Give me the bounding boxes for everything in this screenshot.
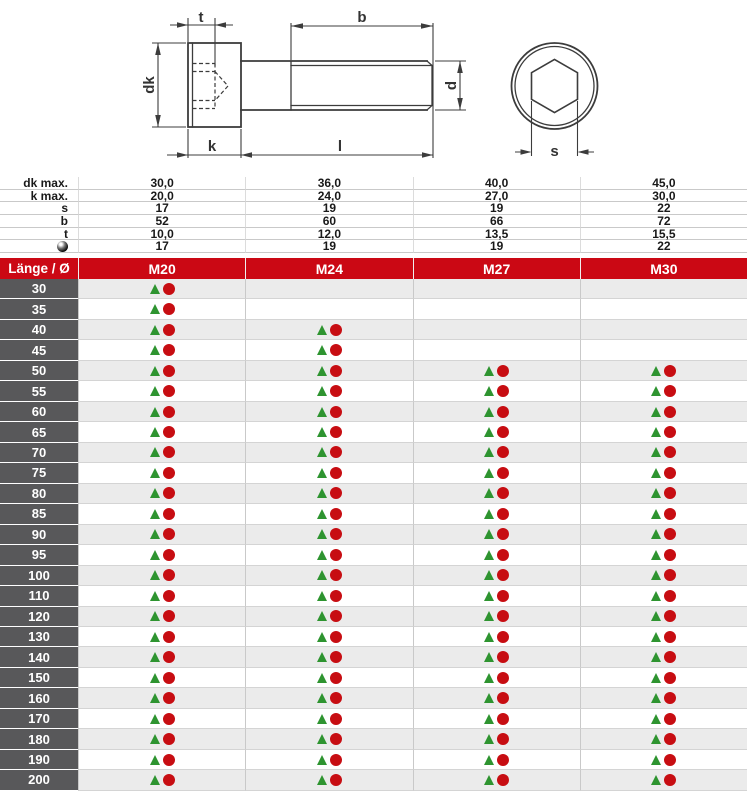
availability-M20-90: [78, 525, 245, 545]
circle-marker: [330, 385, 342, 397]
triangle-marker: [150, 693, 160, 703]
circle-marker: [330, 344, 342, 356]
availability-M27-150: [413, 668, 580, 688]
circle-marker: [497, 487, 509, 499]
availability-M30-70: [580, 443, 747, 463]
circle-marker: [163, 324, 175, 336]
spec-value-dk-max-M24: 36,0: [245, 177, 412, 190]
triangle-marker: [484, 407, 494, 417]
triangle-marker: [484, 468, 494, 478]
availability-M20-40: [78, 320, 245, 340]
triangle-marker: [150, 427, 160, 437]
circle-marker: [330, 713, 342, 725]
availability-M20-180: [78, 729, 245, 749]
availability-M24-50: [245, 361, 412, 381]
circle-marker: [330, 549, 342, 561]
availability-M24-75: [245, 463, 412, 483]
header-col-M24: M24: [245, 258, 412, 279]
triangle-marker: [651, 427, 661, 437]
length-row-55: 55: [0, 381, 747, 401]
triangle-marker: [150, 386, 160, 396]
availability-M24-85: [245, 504, 412, 524]
availability-M30-45: [580, 340, 747, 360]
circle-marker: [497, 549, 509, 561]
triangle-marker: [651, 488, 661, 498]
triangle-marker: [317, 366, 327, 376]
availability-M20-30: [78, 279, 245, 299]
availability-M30-95: [580, 545, 747, 565]
triangle-marker: [150, 304, 160, 314]
availability-M24-190: [245, 750, 412, 770]
circle-marker: [497, 733, 509, 745]
circle-marker: [664, 733, 676, 745]
length-label: 120: [0, 607, 78, 627]
screw-datasheet-page: t b dk k l d s dk max.30,036,040,045,0k …: [0, 0, 747, 791]
triangle-marker: [484, 755, 494, 765]
availability-M30-130: [580, 627, 747, 647]
triangle-marker: [651, 386, 661, 396]
circle-marker: [664, 631, 676, 643]
length-row-65: 65: [0, 422, 747, 442]
header-col-M30: M30: [580, 258, 747, 279]
availability-M30-75: [580, 463, 747, 483]
availability-M20-75: [78, 463, 245, 483]
length-label: 85: [0, 504, 78, 524]
availability-M27-200: [413, 770, 580, 790]
circle-marker: [330, 528, 342, 540]
availability-M24-80: [245, 484, 412, 504]
triangle-marker: [651, 652, 661, 662]
availability-M20-55: [78, 381, 245, 401]
circle-marker: [163, 385, 175, 397]
triangle-marker: [651, 468, 661, 478]
triangle-marker: [317, 488, 327, 498]
length-row-50: 50: [0, 361, 747, 381]
availability-M24-40: [245, 320, 412, 340]
circle-marker: [163, 406, 175, 418]
availability-M30-55: [580, 381, 747, 401]
circle-marker: [497, 365, 509, 377]
length-label: 100: [0, 566, 78, 586]
triangle-marker: [651, 509, 661, 519]
circle-marker: [497, 713, 509, 725]
spec-row-label-t: t: [0, 228, 78, 241]
availability-M30-190: [580, 750, 747, 770]
circle-marker: [497, 631, 509, 643]
triangle-marker: [150, 673, 160, 683]
circle-marker: [163, 672, 175, 684]
availability-M24-65: [245, 422, 412, 442]
length-row-140: 140: [0, 647, 747, 667]
triangle-marker: [150, 611, 160, 621]
availability-M24-180: [245, 729, 412, 749]
circle-marker: [163, 303, 175, 315]
circle-marker: [330, 426, 342, 438]
circle-marker: [497, 651, 509, 663]
availability-M27-190: [413, 750, 580, 770]
circle-marker: [664, 446, 676, 458]
header-col-M20: M20: [78, 258, 245, 279]
length-row-30: 30: [0, 279, 747, 299]
availability-M20-130: [78, 627, 245, 647]
dim-label-s: s: [550, 143, 558, 160]
length-row-130: 130: [0, 627, 747, 647]
length-label: 80: [0, 484, 78, 504]
spec-row-label-key-size: [0, 240, 78, 253]
length-row-190: 190: [0, 750, 747, 770]
circle-marker: [497, 528, 509, 540]
spec-row-k-max: k max.20,024,027,030,0: [0, 190, 747, 203]
length-row-75: 75: [0, 463, 747, 483]
availability-M27-65: [413, 422, 580, 442]
availability-M27-140: [413, 647, 580, 667]
availability-M20-110: [78, 586, 245, 606]
spec-value-key-size-M30: 22: [580, 240, 747, 253]
availability-M24-160: [245, 688, 412, 708]
length-row-90: 90: [0, 525, 747, 545]
length-label: 35: [0, 299, 78, 319]
triangle-marker: [317, 345, 327, 355]
triangle-marker: [150, 345, 160, 355]
length-row-110: 110: [0, 586, 747, 606]
availability-M27-35: [413, 299, 580, 319]
triangle-marker: [150, 591, 160, 601]
circle-marker: [497, 692, 509, 704]
availability-M30-85: [580, 504, 747, 524]
availability-M24-60: [245, 402, 412, 422]
availability-M24-30: [245, 279, 412, 299]
circle-marker: [163, 365, 175, 377]
length-label: 75: [0, 463, 78, 483]
dim-label-t: t: [199, 9, 204, 26]
triangle-marker: [484, 447, 494, 457]
spec-row-b: b52606672: [0, 215, 747, 228]
availability-M30-30: [580, 279, 747, 299]
availability-M30-180: [580, 729, 747, 749]
circle-marker: [664, 754, 676, 766]
circle-marker: [163, 283, 175, 295]
availability-M20-120: [78, 607, 245, 627]
triangle-marker: [484, 591, 494, 601]
triangle-marker: [150, 407, 160, 417]
spec-row-key-size: 17191922: [0, 240, 747, 253]
spec-value-dk-max-M20: 30,0: [78, 177, 245, 190]
triangle-marker: [651, 734, 661, 744]
hidden-socket-lines: [193, 64, 229, 109]
dim-label-d: d: [443, 81, 460, 90]
availability-M20-190: [78, 750, 245, 770]
availability-M30-170: [580, 709, 747, 729]
length-row-160: 160: [0, 688, 747, 708]
length-row-170: 170: [0, 709, 747, 729]
screw-end-view: [512, 43, 598, 129]
availability-M27-55: [413, 381, 580, 401]
triangle-marker: [484, 386, 494, 396]
availability-M27-180: [413, 729, 580, 749]
length-row-100: 100: [0, 566, 747, 586]
spec-row-s: s17191922: [0, 202, 747, 215]
availability-M30-50: [580, 361, 747, 381]
spec-value-dk-max-M27: 40,0: [413, 177, 580, 190]
availability-M24-90: [245, 525, 412, 545]
circle-marker: [497, 467, 509, 479]
triangle-marker: [317, 550, 327, 560]
availability-M20-140: [78, 647, 245, 667]
circle-marker: [664, 467, 676, 479]
triangle-marker: [484, 632, 494, 642]
triangle-marker: [150, 468, 160, 478]
availability-M20-50: [78, 361, 245, 381]
length-label: 90: [0, 525, 78, 545]
availability-M20-100: [78, 566, 245, 586]
availability-M24-55: [245, 381, 412, 401]
availability-M24-70: [245, 443, 412, 463]
availability-M20-170: [78, 709, 245, 729]
circle-marker: [163, 508, 175, 520]
availability-M20-80: [78, 484, 245, 504]
availability-M27-90: [413, 525, 580, 545]
spec-row-label-dk-max: dk max.: [0, 177, 78, 190]
availability-M27-30: [413, 279, 580, 299]
length-label: 45: [0, 340, 78, 360]
triangle-marker: [150, 284, 160, 294]
length-label: 55: [0, 381, 78, 401]
triangle-marker: [150, 632, 160, 642]
availability-M27-130: [413, 627, 580, 647]
triangle-marker: [651, 570, 661, 580]
circle-marker: [330, 754, 342, 766]
triangle-marker: [651, 673, 661, 683]
triangle-marker: [651, 775, 661, 785]
circle-marker: [163, 774, 175, 786]
length-row-45: 45: [0, 340, 747, 360]
availability-M30-60: [580, 402, 747, 422]
triangle-marker: [317, 468, 327, 478]
circle-marker: [163, 344, 175, 356]
triangle-marker: [150, 714, 160, 724]
circle-marker: [664, 487, 676, 499]
triangle-marker: [317, 570, 327, 580]
length-row-200: 200: [0, 770, 747, 790]
availability-M20-70: [78, 443, 245, 463]
circle-marker: [497, 590, 509, 602]
length-label: 65: [0, 422, 78, 442]
triangle-marker: [484, 652, 494, 662]
triangle-marker: [317, 652, 327, 662]
availability-M30-90: [580, 525, 747, 545]
length-label: 110: [0, 586, 78, 606]
triangle-marker: [150, 775, 160, 785]
length-row-80: 80: [0, 484, 747, 504]
availability-M27-100: [413, 566, 580, 586]
triangle-marker: [651, 693, 661, 703]
spec-value-dk-max-M30: 45,0: [580, 177, 747, 190]
circle-marker: [664, 508, 676, 520]
circle-marker: [664, 569, 676, 581]
length-row-40: 40: [0, 320, 747, 340]
triangle-marker: [484, 734, 494, 744]
triangle-marker: [484, 775, 494, 785]
spec-value-key-size-M27: 19: [413, 240, 580, 253]
circle-marker: [330, 569, 342, 581]
triangle-marker: [651, 550, 661, 560]
screw-side-view: [188, 43, 432, 127]
triangle-marker: [484, 366, 494, 376]
availability-M27-40: [413, 320, 580, 340]
circle-marker: [163, 692, 175, 704]
circle-marker: [163, 569, 175, 581]
availability-M24-120: [245, 607, 412, 627]
spec-row-label-b: b: [0, 215, 78, 228]
spec-value-b-M24: 60: [245, 215, 412, 228]
circle-marker: [664, 426, 676, 438]
triangle-marker: [317, 529, 327, 539]
length-label: 70: [0, 443, 78, 463]
availability-M27-60: [413, 402, 580, 422]
spec-table: dk max.30,036,040,045,0k max.20,024,027,…: [0, 177, 747, 253]
availability-M24-170: [245, 709, 412, 729]
circle-marker: [497, 406, 509, 418]
triangle-marker: [150, 755, 160, 765]
circle-marker: [163, 446, 175, 458]
triangle-marker: [317, 386, 327, 396]
triangle-marker: [484, 488, 494, 498]
availability-M20-150: [78, 668, 245, 688]
availability-M24-200: [245, 770, 412, 790]
circle-marker: [497, 385, 509, 397]
dimension-lines: [152, 18, 594, 158]
circle-marker: [163, 610, 175, 622]
circle-marker: [330, 406, 342, 418]
availability-M27-170: [413, 709, 580, 729]
length-label: 180: [0, 729, 78, 749]
availability-M30-65: [580, 422, 747, 442]
triangle-marker: [484, 550, 494, 560]
circle-marker: [163, 528, 175, 540]
availability-M30-120: [580, 607, 747, 627]
spec-value-b-M27: 66: [413, 215, 580, 228]
circle-marker: [664, 385, 676, 397]
length-label: 170: [0, 709, 78, 729]
spec-value-b-M20: 52: [78, 215, 245, 228]
availability-M20-200: [78, 770, 245, 790]
circle-marker: [330, 590, 342, 602]
triangle-marker: [150, 366, 160, 376]
triangle-marker: [317, 325, 327, 335]
length-header-cell: Länge / Ø: [0, 258, 78, 279]
triangle-marker: [484, 570, 494, 580]
triangle-marker: [150, 325, 160, 335]
availability-M20-95: [78, 545, 245, 565]
length-label: 160: [0, 688, 78, 708]
length-row-180: 180: [0, 729, 747, 749]
triangle-marker: [317, 611, 327, 621]
triangle-marker: [651, 529, 661, 539]
triangle-marker: [317, 693, 327, 703]
triangle-marker: [317, 775, 327, 785]
availability-M27-95: [413, 545, 580, 565]
dim-label-l: l: [338, 138, 342, 155]
triangle-marker: [150, 570, 160, 580]
length-row-95: 95: [0, 545, 747, 565]
circle-marker: [664, 590, 676, 602]
availability-M20-85: [78, 504, 245, 524]
circle-marker: [664, 672, 676, 684]
triangle-marker: [150, 509, 160, 519]
availability-M24-150: [245, 668, 412, 688]
triangle-marker: [484, 509, 494, 519]
table-header: Länge / Ø M20M24M27M30: [0, 258, 747, 279]
triangle-marker: [484, 714, 494, 724]
dim-label-b: b: [357, 9, 366, 26]
spec-value-key-size-M20: 17: [78, 240, 245, 253]
length-row-85: 85: [0, 504, 747, 524]
length-row-150: 150: [0, 668, 747, 688]
availability-M27-70: [413, 443, 580, 463]
circle-marker: [330, 365, 342, 377]
length-label: 130: [0, 627, 78, 647]
availability-M27-80: [413, 484, 580, 504]
triangle-marker: [317, 632, 327, 642]
triangle-marker: [651, 611, 661, 621]
dim-label-dk: dk: [141, 76, 158, 94]
triangle-marker: [651, 366, 661, 376]
circle-marker: [664, 365, 676, 377]
triangle-marker: [317, 427, 327, 437]
triangle-marker: [651, 591, 661, 601]
triangle-marker: [150, 652, 160, 662]
triangle-marker: [317, 509, 327, 519]
availability-M30-40: [580, 320, 747, 340]
spec-value-key-size-M24: 19: [245, 240, 412, 253]
triangle-marker: [317, 407, 327, 417]
circle-marker: [497, 426, 509, 438]
circle-marker: [163, 426, 175, 438]
circle-marker: [664, 651, 676, 663]
length-row-120: 120: [0, 607, 747, 627]
availability-M30-140: [580, 647, 747, 667]
circle-marker: [497, 569, 509, 581]
circle-marker: [163, 713, 175, 725]
triangle-marker: [150, 447, 160, 457]
circle-marker: [330, 446, 342, 458]
circle-marker: [330, 467, 342, 479]
triangle-marker: [484, 673, 494, 683]
triangle-marker: [484, 529, 494, 539]
availability-M24-95: [245, 545, 412, 565]
length-label: 190: [0, 750, 78, 770]
availability-M24-110: [245, 586, 412, 606]
triangle-marker: [651, 447, 661, 457]
triangle-marker: [317, 714, 327, 724]
circle-marker: [497, 672, 509, 684]
availability-M30-80: [580, 484, 747, 504]
length-label: 95: [0, 545, 78, 565]
circle-marker: [163, 733, 175, 745]
availability-M24-45: [245, 340, 412, 360]
availability-M20-160: [78, 688, 245, 708]
availability-M30-200: [580, 770, 747, 790]
length-row-60: 60: [0, 402, 747, 422]
availability-M27-75: [413, 463, 580, 483]
availability-M27-110: [413, 586, 580, 606]
triangle-marker: [317, 673, 327, 683]
technical-drawing: t b dk k l d s: [0, 0, 747, 163]
availability-M30-110: [580, 586, 747, 606]
length-label: 50: [0, 361, 78, 381]
availability-M30-150: [580, 668, 747, 688]
length-label: 150: [0, 668, 78, 688]
